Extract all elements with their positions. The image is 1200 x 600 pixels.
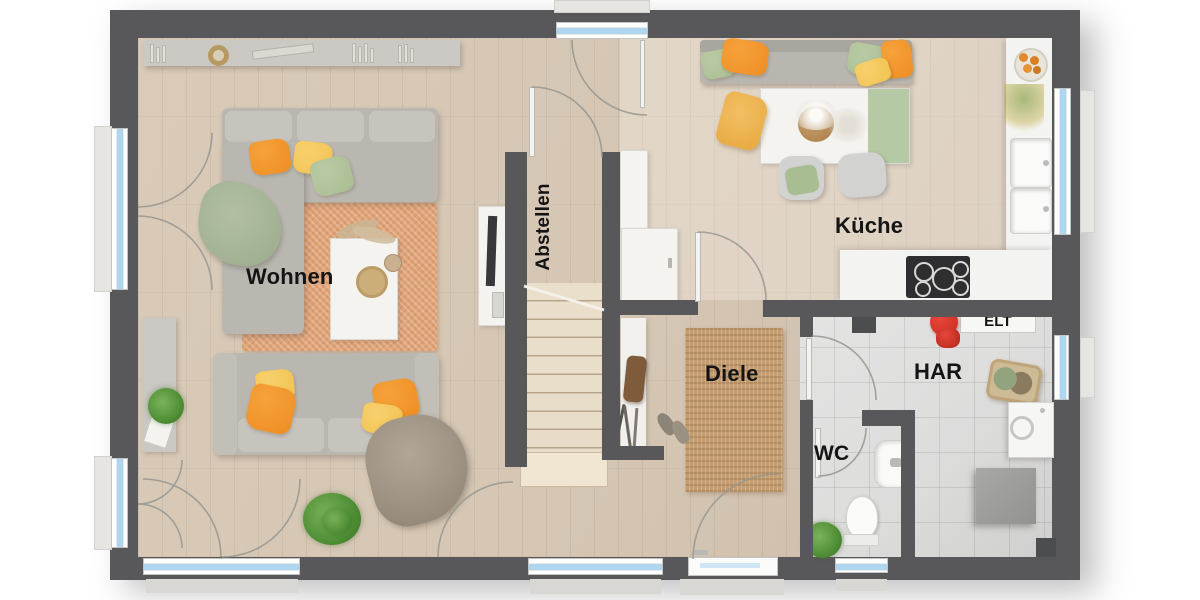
niche-wall <box>602 446 664 460</box>
window-sill <box>1080 90 1095 233</box>
hall-wall-west <box>602 300 698 315</box>
sofa-armrest <box>213 353 237 455</box>
room-label-wc: WC <box>814 442 849 466</box>
toilet-tank <box>843 534 879 546</box>
vase <box>384 254 402 272</box>
sofa-cushion <box>296 110 365 143</box>
dining-chair <box>837 151 888 198</box>
har-wall-upper <box>800 317 813 337</box>
hall-cabinet-tall <box>620 150 648 230</box>
closet-handle <box>668 258 672 268</box>
wc-right-wall <box>901 410 915 557</box>
window-left-2 <box>111 458 128 548</box>
cooktop-burner <box>952 261 969 278</box>
fruit <box>1033 66 1041 74</box>
floor-plan: ELT <box>0 0 1200 600</box>
door-leaf-hall <box>695 232 701 302</box>
window-sill <box>554 0 650 13</box>
fruit <box>1023 64 1032 73</box>
door-handle <box>694 550 708 555</box>
books-decor <box>352 42 374 63</box>
room-label-abstellen: Abstellen <box>533 167 555 287</box>
window-left-1 <box>111 128 128 290</box>
media-box <box>492 292 504 318</box>
entry-step <box>680 579 784 595</box>
potted-plant <box>148 388 184 424</box>
fruit <box>1019 53 1028 62</box>
duct-block <box>852 317 876 333</box>
room-label-diele: Diele <box>705 361 759 387</box>
washer-dial <box>1040 408 1045 413</box>
window-bottom-hall <box>528 558 663 575</box>
window-sill <box>836 579 887 591</box>
faucet <box>1043 160 1049 166</box>
window-bottom-living <box>143 558 300 575</box>
window-har <box>1054 335 1069 400</box>
window-sill <box>94 126 112 292</box>
room-label-har: HAR <box>914 359 962 385</box>
books-decor <box>150 43 166 63</box>
window-top <box>556 22 648 39</box>
window-sill <box>146 579 298 593</box>
room-label-wohnen: Wohnen <box>246 264 334 290</box>
faucet <box>1043 206 1049 212</box>
window-wc <box>835 558 888 573</box>
toilet-bowl <box>846 496 878 538</box>
vacuum-red <box>936 328 960 348</box>
pillow-orange <box>248 137 292 176</box>
decor-tray <box>356 266 388 298</box>
hallway-rug <box>685 328 783 492</box>
washer-door <box>1010 416 1034 440</box>
duct-block <box>1036 538 1056 557</box>
books-decor <box>398 43 414 63</box>
staircase <box>527 283 602 467</box>
room-label-kueche: Küche <box>835 213 903 239</box>
utility-unit <box>976 468 1036 524</box>
window-sill <box>94 456 112 550</box>
cooktop-burner <box>914 262 934 282</box>
har-wall-lower <box>800 400 813 557</box>
window-kitchen <box>1054 88 1071 235</box>
window-sill <box>1080 337 1095 398</box>
fruit <box>1030 56 1039 65</box>
decor-plate <box>208 45 229 66</box>
sofa-cushion <box>224 110 293 143</box>
cooktop-burner <box>952 279 969 296</box>
sofa-cushion <box>368 110 436 143</box>
window-sill <box>530 579 661 594</box>
window-sash-open <box>640 40 645 108</box>
hanging-greenery <box>1004 84 1044 134</box>
kitchen-south-wall <box>763 300 1052 317</box>
napkin-green <box>784 163 820 196</box>
palm-plant <box>322 508 352 534</box>
cooktop-burner <box>915 281 931 297</box>
stair-wall-left <box>505 152 527 467</box>
stair-landing <box>520 452 608 487</box>
door-leaf-abstellen <box>529 87 535 157</box>
dried-bouquet <box>826 108 870 142</box>
pillow-orange <box>720 37 770 77</box>
door-leaf-har <box>806 338 812 400</box>
front-door-glass <box>700 563 760 568</box>
